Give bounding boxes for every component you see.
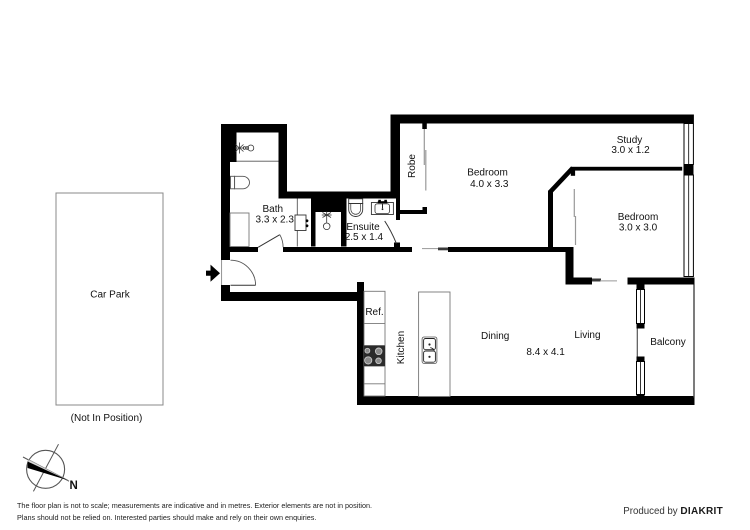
svg-text:Ref.: Ref. bbox=[365, 307, 383, 318]
svg-text:Bath: Bath bbox=[263, 204, 284, 215]
svg-text:Car Park: Car Park bbox=[90, 289, 130, 300]
svg-text:3.3 x 2.3: 3.3 x 2.3 bbox=[256, 215, 295, 226]
svg-text:N: N bbox=[70, 480, 78, 492]
svg-text:The floor plan is not to scale: The floor plan is not to scale; measurem… bbox=[17, 501, 372, 510]
svg-text:Robe: Robe bbox=[407, 154, 418, 178]
svg-text:Balcony: Balcony bbox=[650, 337, 686, 348]
svg-text:8.4 x 4.1: 8.4 x 4.1 bbox=[526, 347, 565, 358]
svg-text:3.0 x 1.2: 3.0 x 1.2 bbox=[611, 145, 650, 156]
svg-text:Dining: Dining bbox=[481, 331, 509, 342]
svg-text:(Not In Position): (Not In Position) bbox=[71, 413, 143, 424]
svg-text:4.0 x 3.3: 4.0 x 3.3 bbox=[470, 179, 509, 190]
svg-text:Kitchen: Kitchen bbox=[396, 331, 407, 364]
svg-text:Plans should not be relied on.: Plans should not be relied on. Intereste… bbox=[17, 513, 316, 522]
svg-text:Bedroom: Bedroom bbox=[618, 212, 659, 223]
svg-text:Living: Living bbox=[574, 330, 600, 341]
svg-text:Bedroom: Bedroom bbox=[467, 167, 508, 178]
svg-text:2.5 x 1.4: 2.5 x 1.4 bbox=[345, 232, 384, 243]
svg-text:3.0 x 3.0: 3.0 x 3.0 bbox=[619, 222, 658, 233]
svg-text:Produced by DIAKRIT: Produced by DIAKRIT bbox=[623, 506, 723, 517]
